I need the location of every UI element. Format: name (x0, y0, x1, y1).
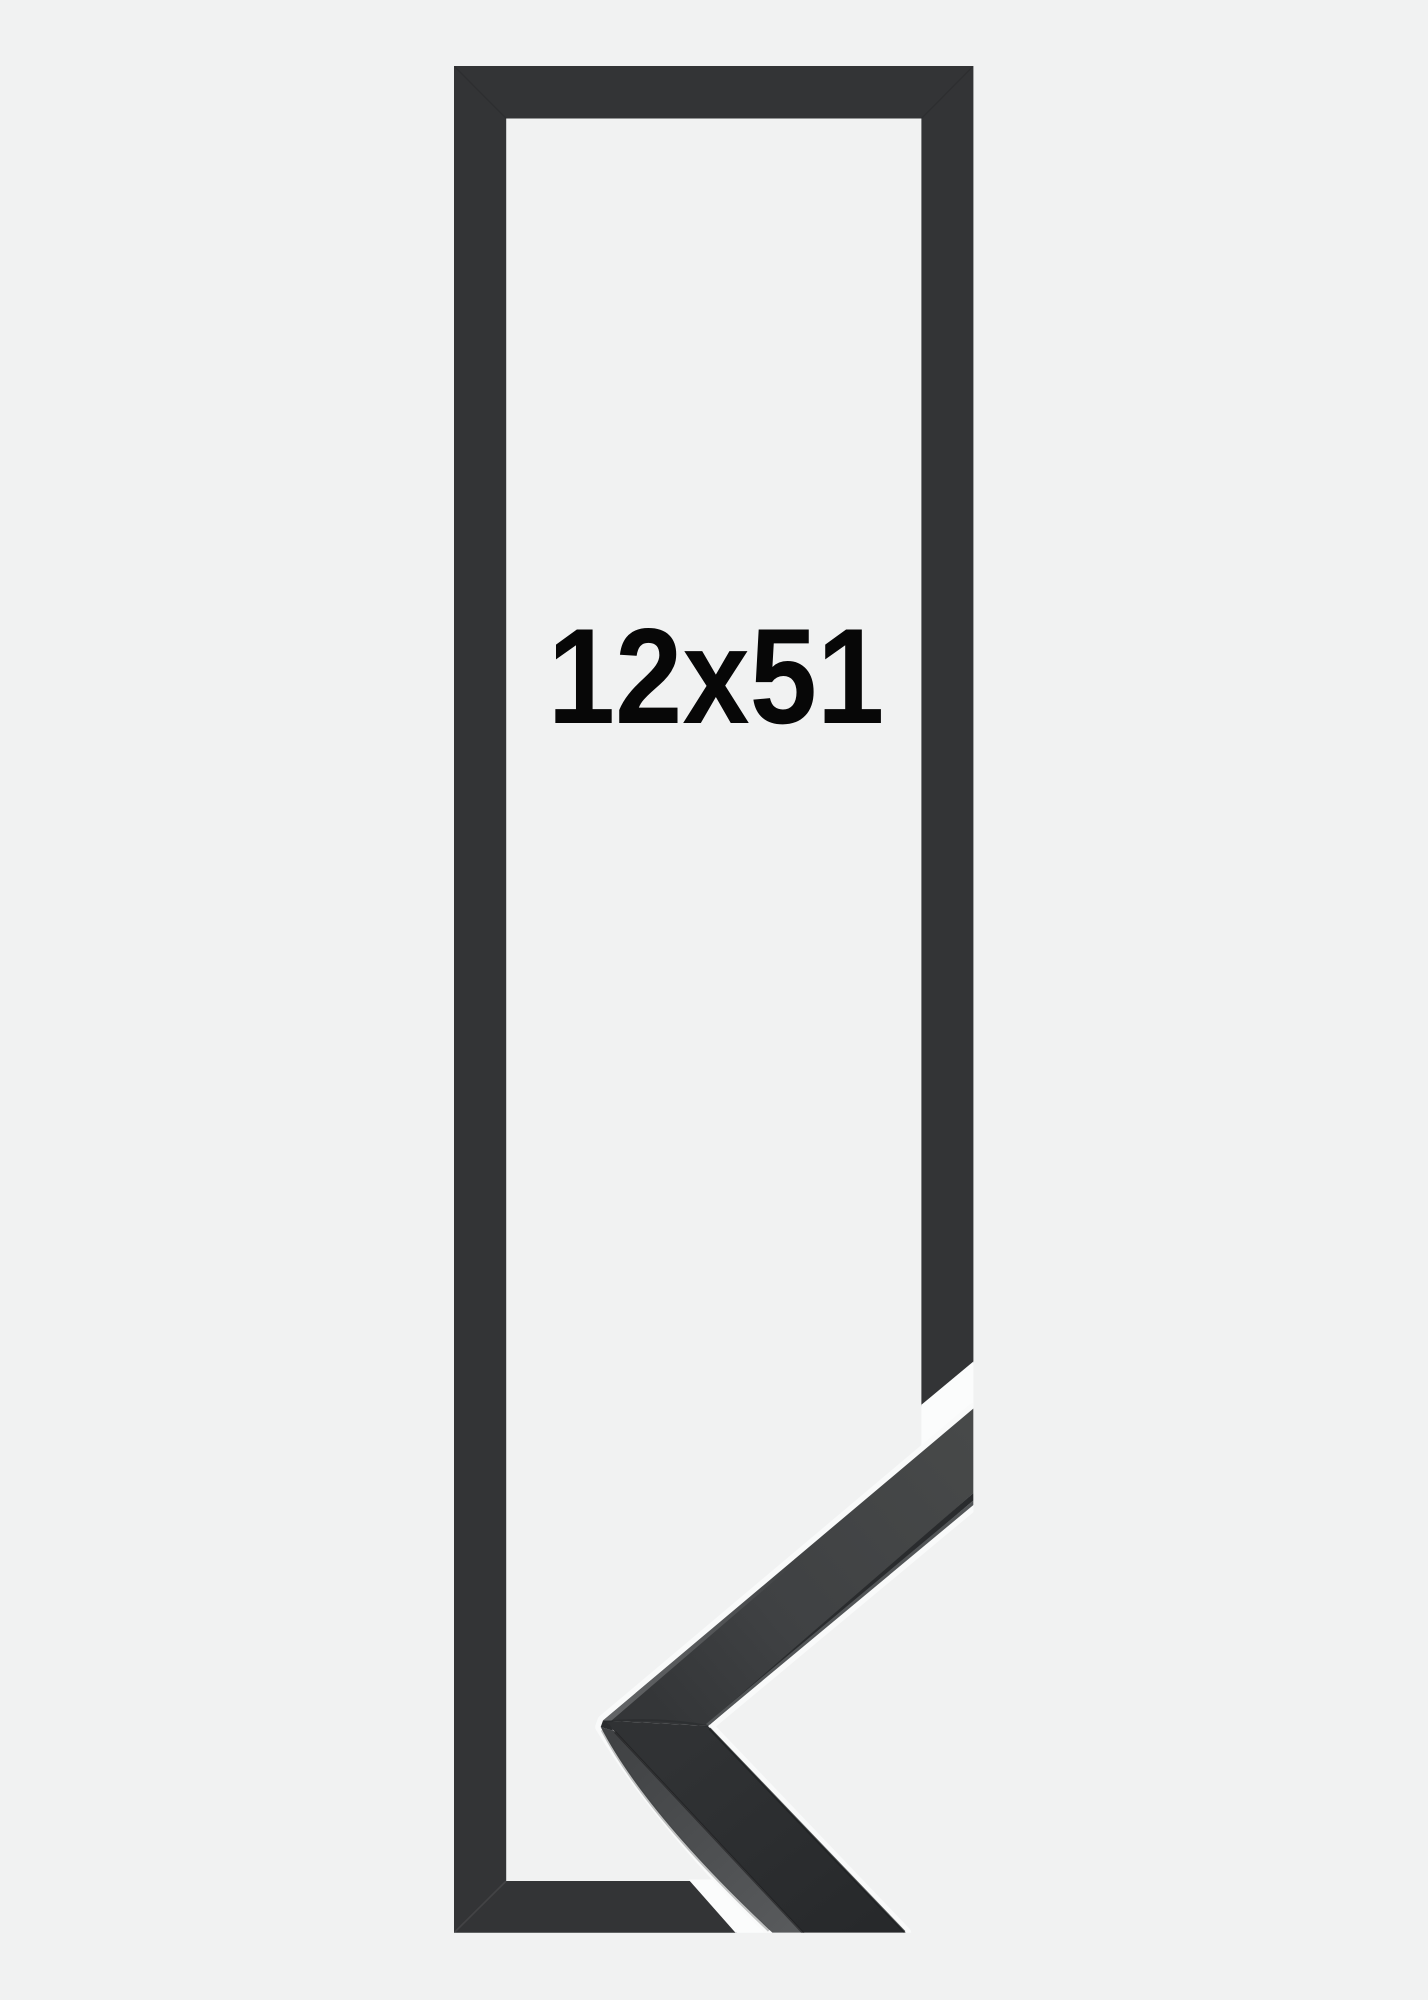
svg-text:12x51: 12x51 (548, 600, 885, 752)
